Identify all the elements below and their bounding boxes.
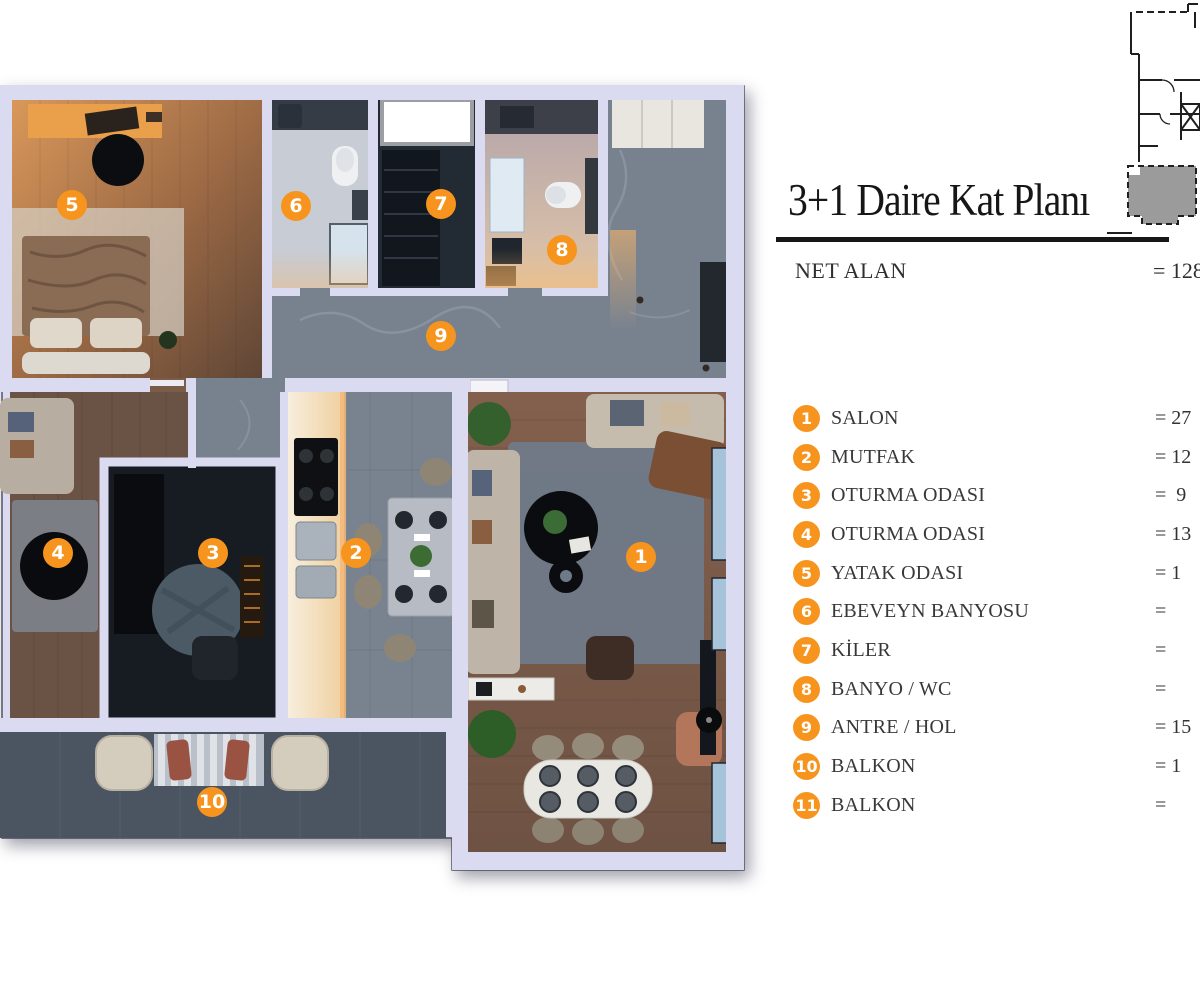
room-kitchen [288, 392, 454, 718]
legend-value: = [1155, 794, 1166, 817]
legend-label: SALON [831, 407, 899, 430]
legend-marker: 9 [793, 714, 820, 741]
legend-marker: 4 [793, 521, 820, 548]
legend: 1SALON= 272MUTFAK= 123OTURMA ODASI= 94OT… [793, 399, 1200, 825]
legend-marker: 10 [793, 753, 820, 780]
legend-marker: 1 [793, 405, 820, 432]
legend-value: = [1155, 678, 1166, 701]
legend-value: = 9 [1155, 484, 1186, 507]
page: 12345678910 3+1 Daire Kat Planı NET ALAN… [0, 0, 1200, 1000]
room-bathroom-wc [484, 100, 599, 288]
legend-value: = 1 [1155, 755, 1181, 778]
legend-label: OTURMA ODASI [831, 523, 985, 546]
legend-row: 4OTURMA ODASI= 13 [793, 515, 1200, 554]
legend-label: YATAK ODASI [831, 562, 963, 585]
legend-row: 5YATAK ODASI= 1 [793, 554, 1200, 593]
legend-label: KİLER [831, 639, 891, 662]
legend-value: = 27 [1155, 407, 1191, 430]
legend-value: = [1155, 639, 1166, 662]
legend-marker: 7 [793, 637, 820, 664]
room-pantry [378, 98, 475, 288]
legend-label: BANYO / WC [831, 678, 952, 701]
legend-marker: 2 [793, 444, 820, 471]
legend-marker: 11 [793, 792, 820, 819]
legend-marker: 5 [793, 560, 820, 587]
legend-row: 11BALKON= [793, 786, 1200, 825]
legend-value: = [1155, 600, 1166, 623]
page-title: 3+1 Daire Kat Planı [788, 174, 1089, 226]
net-area-label: NET ALAN [795, 258, 907, 284]
room-sitting-2 [104, 462, 280, 722]
legend-marker: 8 [793, 676, 820, 703]
legend-row: 1SALON= 27 [793, 399, 1200, 438]
legend-label: BALKON [831, 794, 916, 817]
legend-label: BALKON [831, 755, 916, 778]
legend-label: EBEVEYN BANYOSU [831, 600, 1029, 623]
floor-plan [0, 80, 756, 880]
legend-row: 6EBEVEYN BANYOSU= [793, 592, 1200, 631]
legend-row: 9ANTRE / HOL= 15 [793, 709, 1200, 748]
legend-value: = 1 [1155, 562, 1181, 585]
room-parent-bathroom [272, 100, 368, 288]
legend-value: = 13 [1155, 523, 1191, 546]
room-salon [466, 392, 732, 852]
legend-label: MUTFAK [831, 446, 915, 469]
room-balcony [0, 732, 446, 838]
legend-row: 3OTURMA ODASI= 9 [793, 476, 1200, 515]
legend-value: = 12 [1155, 446, 1191, 469]
legend-row: 10BALKON= 1 [793, 747, 1200, 786]
legend-label: OTURMA ODASI [831, 484, 985, 507]
legend-row: 7KİLER= [793, 631, 1200, 670]
legend-row: 8BANYO / WC= [793, 670, 1200, 709]
legend-marker: 3 [793, 482, 820, 509]
key-plan-thumbnail [1104, 0, 1200, 245]
room-bedroom [0, 100, 262, 378]
legend-row: 2MUTFAK= 12 [793, 438, 1200, 477]
legend-label: ANTRE / HOL [831, 716, 957, 739]
legend-value: = 15 [1155, 716, 1191, 739]
legend-marker: 6 [793, 598, 820, 625]
net-area-value: = 128 [1153, 258, 1200, 284]
